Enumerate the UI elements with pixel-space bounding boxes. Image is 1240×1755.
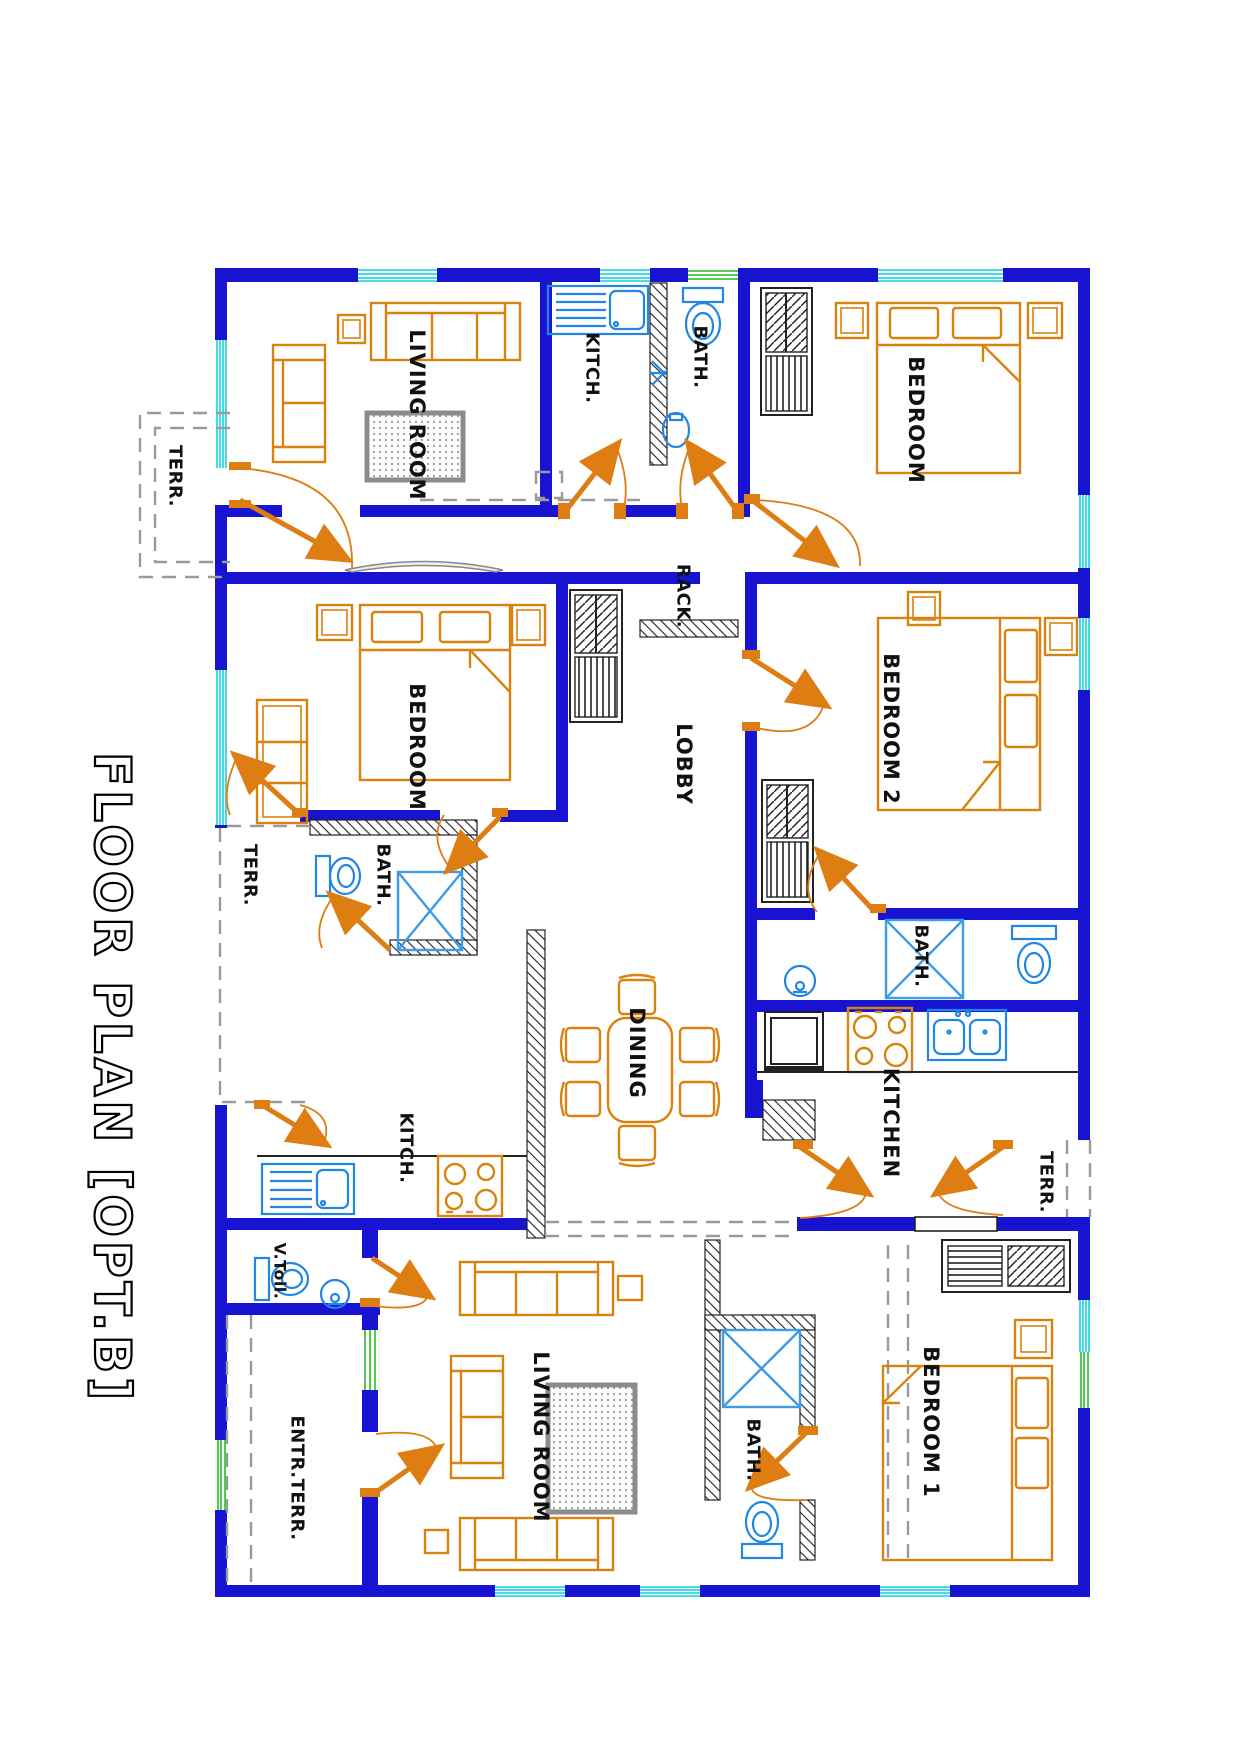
window-top-living <box>358 268 437 282</box>
label-lobby: LOBBY <box>672 723 696 805</box>
label-living-room-top: LIVING ROOM <box>405 329 429 500</box>
label-bath-bottom: BATH. <box>743 1419 764 1482</box>
label-kitch-left: KITCH. <box>396 1112 417 1183</box>
label-bedroom-1: BEDROOM 1 <box>919 1346 943 1497</box>
vent-right-bedroom1 <box>1078 1352 1090 1408</box>
label-entr-terrace: ENTR.TERR. <box>287 1415 308 1540</box>
label-vtoil: V.Toil. <box>271 1243 290 1300</box>
window-left-living <box>215 340 227 468</box>
window-right-bedroom-top <box>1078 495 1090 568</box>
drawing-title: FLOOR PLAN [OPT.B] <box>83 752 141 1404</box>
label-terrace-right: TERR. <box>1036 1151 1057 1213</box>
window-left-bedroom <box>215 670 227 825</box>
window-right-bedroom2 <box>1078 618 1090 690</box>
label-bath-left: BATH. <box>373 844 394 907</box>
floor-plan-drawing: LIVING ROOM KITCH. BATH. BEDROOM TERR. R… <box>0 0 1240 1755</box>
vent-entrance-wall <box>362 1330 378 1390</box>
label-terrace-top: TERR. <box>165 445 186 507</box>
label-living-room-bottom: LIVING ROOM <box>529 1351 553 1522</box>
bedroom1-opening <box>915 1217 997 1231</box>
window-bottom-bath <box>640 1585 700 1597</box>
vent-left-bottom <box>215 1440 227 1510</box>
window-bottom-living <box>495 1585 565 1597</box>
label-terrace-left: TERR. <box>240 844 261 906</box>
window-right-bedroom1 <box>1078 1300 1090 1352</box>
label-bedroom-2: BEDROOM 2 <box>879 653 903 804</box>
label-dining: DINING <box>625 1007 649 1098</box>
label-bedroom-top: BEDROOM <box>904 356 928 484</box>
window-bottom-bedroom1 <box>880 1585 950 1597</box>
vent-top-bath <box>688 268 738 282</box>
window-top-kitch <box>600 268 650 282</box>
label-rack: RACK. <box>673 564 694 628</box>
window-top-bedroom <box>878 268 1003 282</box>
wardrobe-bedroom-top <box>761 288 812 415</box>
label-kitchen: KITCHEN <box>879 1068 903 1178</box>
rug-living-bottom <box>548 1385 635 1512</box>
label-bedroom-mid: BEDROOM <box>405 683 429 811</box>
label-bath-top: BATH. <box>690 326 711 389</box>
partition-dining-west <box>527 930 545 1238</box>
label-bath-right: BATH. <box>911 925 932 988</box>
label-kitch-top: KITCH. <box>582 332 603 403</box>
